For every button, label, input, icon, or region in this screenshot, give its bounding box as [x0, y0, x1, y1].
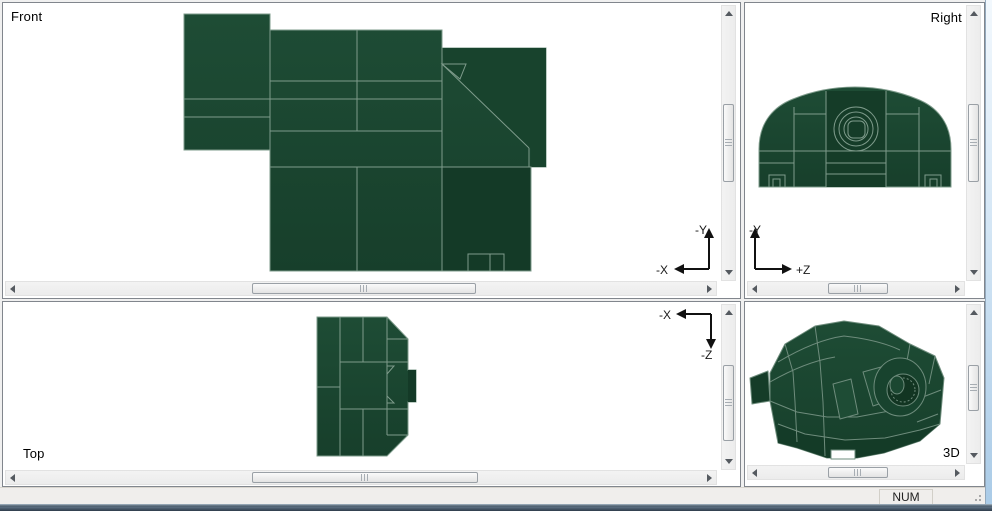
front-vertical-scrollbar[interactable]: [721, 5, 736, 281]
thumb-grip-icon: [970, 384, 977, 393]
top-horizontal-scrollbar[interactable]: [5, 470, 717, 485]
axis-label-up: -Y: [749, 223, 761, 237]
scroll-up-icon[interactable]: [725, 11, 733, 16]
axis-label-right: +Z: [796, 263, 810, 277]
front-view-model[interactable]: [184, 14, 546, 271]
scroll-right-icon[interactable]: [707, 285, 712, 293]
threed-view-model[interactable]: [750, 321, 944, 459]
right-horizontal-scrollbar-thumb[interactable]: [828, 283, 888, 294]
right-view-model[interactable]: [759, 87, 951, 187]
threed-horizontal-scrollbar[interactable]: [747, 465, 965, 480]
axis-label-left: -X: [656, 263, 668, 277]
right-viewport-pane: Right -Y +Z: [744, 2, 985, 299]
scroll-right-icon[interactable]: [955, 285, 960, 293]
axis-indicator-right: -Y +Z: [747, 221, 817, 277]
status-bar: NUM: [0, 487, 985, 504]
axis-label-left: -X: [659, 308, 671, 322]
front-horizontal-scrollbar[interactable]: [5, 281, 717, 296]
top-viewport-canvas[interactable]: [3, 302, 740, 486]
num-lock-indicator: NUM: [879, 489, 933, 505]
scroll-left-icon[interactable]: [752, 285, 757, 293]
scroll-up-icon[interactable]: [970, 310, 978, 315]
scroll-right-icon[interactable]: [707, 474, 712, 482]
scroll-left-icon[interactable]: [10, 285, 15, 293]
threed-viewport-pane: 3D: [744, 301, 985, 487]
right-horizontal-scrollbar[interactable]: [747, 281, 965, 296]
front-viewport-canvas[interactable]: [3, 3, 740, 298]
right-vertical-scrollbar[interactable]: [966, 5, 981, 281]
axis-arrow-left-icon: [674, 264, 709, 274]
axis-indicator-front: -Y -X: [653, 221, 723, 277]
scroll-left-icon[interactable]: [752, 469, 757, 477]
thumb-grip-icon: [725, 139, 732, 148]
axis-arrow-right-icon: [755, 264, 792, 274]
scroll-up-icon[interactable]: [970, 11, 978, 16]
threed-vertical-scrollbar[interactable]: [966, 304, 981, 464]
cad-application-window: Front -Y -X: [0, 0, 992, 511]
axis-arrow-left-icon: [676, 309, 711, 319]
scroll-down-icon[interactable]: [970, 270, 978, 275]
thumb-grip-icon: [725, 399, 732, 408]
thumb-grip-icon: [854, 469, 863, 476]
axis-label-up: -Y: [695, 223, 707, 237]
top-vertical-scrollbar-thumb[interactable]: [723, 365, 734, 441]
right-pane-label: Right: [931, 10, 962, 25]
thumb-grip-icon: [360, 285, 369, 292]
front-viewport-pane: Front -Y -X: [2, 2, 741, 299]
right-vertical-scrollbar-thumb[interactable]: [968, 104, 979, 182]
thumb-grip-icon: [970, 139, 977, 148]
threed-pane-label: 3D: [943, 445, 960, 460]
resize-grip[interactable]: [971, 491, 981, 501]
scroll-right-icon[interactable]: [955, 469, 960, 477]
axis-label-down: -Z: [701, 348, 712, 362]
top-pane-label: Top: [23, 446, 45, 461]
front-pane-label: Front: [11, 9, 42, 24]
scroll-down-icon[interactable]: [725, 270, 733, 275]
scroll-down-icon[interactable]: [725, 459, 733, 464]
threed-horizontal-scrollbar-thumb[interactable]: [828, 467, 888, 478]
top-vertical-scrollbar[interactable]: [721, 304, 736, 470]
threed-vertical-scrollbar-thumb[interactable]: [968, 365, 979, 411]
window-border-right: [985, 0, 992, 504]
axis-indicator-top: -X -Z: [651, 304, 723, 364]
thumb-grip-icon: [854, 285, 863, 292]
thumb-grip-icon: [361, 474, 370, 481]
top-viewport-pane: Top -X -Z: [2, 301, 741, 487]
taskbar-edge: [0, 504, 992, 511]
scroll-up-icon[interactable]: [725, 310, 733, 315]
front-horizontal-scrollbar-thumb[interactable]: [252, 283, 476, 294]
axis-arrow-down-icon: [706, 314, 716, 349]
top-horizontal-scrollbar-thumb[interactable]: [252, 472, 478, 483]
scroll-left-icon[interactable]: [10, 474, 15, 482]
front-vertical-scrollbar-thumb[interactable]: [723, 104, 734, 182]
scroll-down-icon[interactable]: [970, 453, 978, 458]
top-view-model[interactable]: [317, 317, 416, 456]
